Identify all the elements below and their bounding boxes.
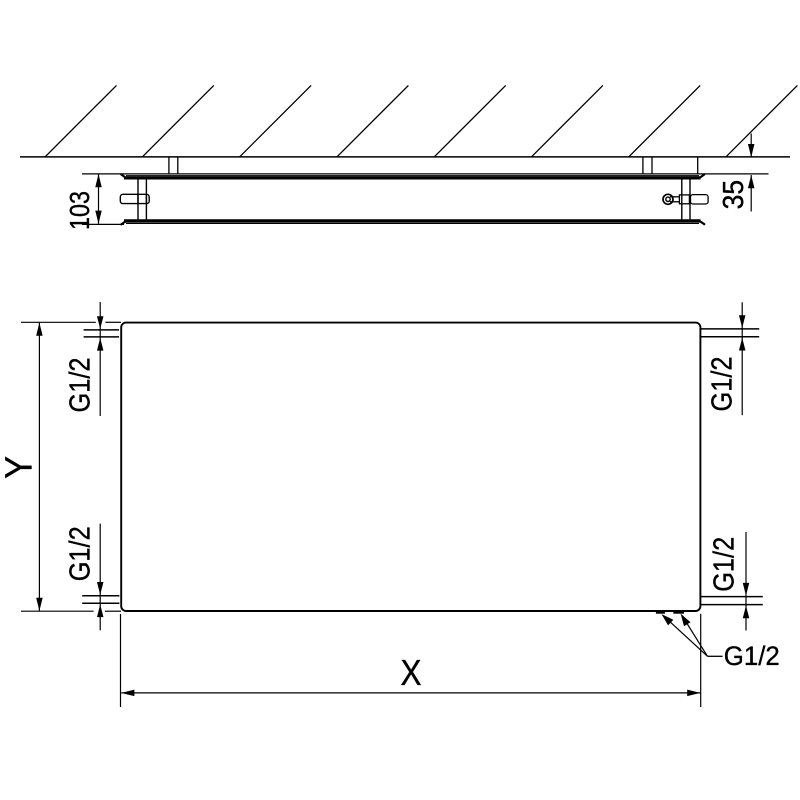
svg-text:G1/2: G1/2 [65, 358, 97, 413]
svg-text:Y: Y [0, 456, 41, 479]
svg-text:G1/2: G1/2 [65, 526, 97, 581]
svg-text:G1/2: G1/2 [707, 357, 739, 412]
svg-text:35: 35 [718, 180, 750, 210]
svg-text:103: 103 [64, 191, 95, 230]
svg-text:G1/2: G1/2 [724, 641, 780, 671]
svg-text:X: X [401, 652, 422, 693]
svg-text:G1/2: G1/2 [709, 537, 741, 592]
